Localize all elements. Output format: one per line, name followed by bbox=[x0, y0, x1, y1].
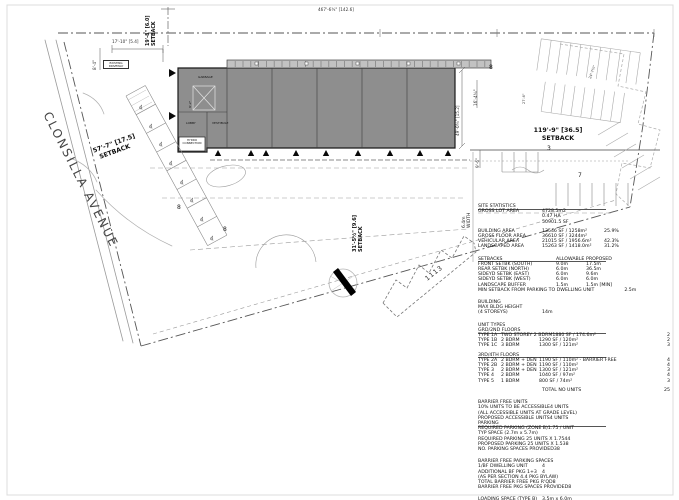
svg-text:♿: ♿ bbox=[178, 178, 186, 187]
stats-label: TYPE 1C bbox=[478, 343, 501, 348]
stall-count-canopy-end: 8 bbox=[489, 65, 493, 72]
stats-row: TYPE 1C 3 BDRM 1300 SF / 121m² 3 bbox=[478, 343, 670, 348]
stats-count: 3 bbox=[656, 343, 670, 348]
garbage-room-label: GARBAGE bbox=[198, 76, 213, 79]
dimension-27-6: 27'-6" bbox=[522, 93, 526, 104]
stats-value: 38 bbox=[554, 447, 616, 452]
stats-value: TOTAL NO UNITS bbox=[542, 388, 604, 393]
stats-count: 25 bbox=[656, 388, 670, 393]
stats-extra bbox=[604, 388, 656, 393]
stats-extra bbox=[630, 485, 656, 490]
hydro-connection-label: HYDRO CONNECTION bbox=[180, 139, 204, 145]
stats-row: LANDSCAPED AREA 15263 SF / 1418.0m² 31.2… bbox=[478, 244, 670, 249]
stats-count bbox=[656, 288, 670, 293]
building-footprint bbox=[178, 68, 455, 152]
stats-label: BARRIER FREE PKG SPACES PROVIDED bbox=[478, 485, 568, 490]
stall-count-left: 8 bbox=[177, 205, 181, 212]
building-depth-dimension: 49'-0¾" [15.2] bbox=[456, 105, 461, 136]
stats-value bbox=[594, 288, 624, 293]
stats-row: 50901.5 SF bbox=[478, 220, 670, 225]
stats-value: 15263 SF / 1418.0m² bbox=[542, 244, 604, 249]
canopy bbox=[227, 60, 491, 68]
setback-label-bottom: 31'-5½" [9.6] SETBACK bbox=[352, 215, 364, 252]
overall-dimension-label: 467'-6¾" [142.6] bbox=[318, 8, 354, 13]
stats-label: (4 STOREYS) bbox=[478, 310, 542, 315]
stats-label: TYPE 5 bbox=[478, 379, 501, 384]
dimension-9-6: 9'-6" bbox=[476, 158, 481, 168]
svg-text:♿: ♿ bbox=[147, 122, 155, 131]
aisle-width-label: 6.4m WIDTH bbox=[462, 213, 472, 228]
stall-count-right-7: 7 bbox=[578, 173, 582, 180]
site-statistics-table: SITE STATISTICS GROSS LOT AREA 4728.5m2 … bbox=[478, 204, 670, 500]
stats-count bbox=[656, 447, 670, 452]
stats-extra: 800 SF / 74m² bbox=[539, 379, 656, 384]
stats-row: TYPE 5 1 BDRM 800 SF / 74m² 3 bbox=[478, 379, 670, 384]
parking-rows-top-right bbox=[531, 39, 640, 124]
stair-dimension-label: 9'-2" bbox=[189, 101, 192, 108]
stats-row: NO. PARKING SPACES PROVIDED 38 bbox=[478, 447, 670, 452]
stats-count bbox=[656, 220, 670, 225]
site-plan-sheet: ♿ ♿ ♿ ♿ ♿ ♿ ♿ ♿ CLONSILLA AVENUE 467'-6¾ bbox=[0, 0, 679, 500]
stats-row: MIN SETBACK FROM PARKING TO DWELLING UNI… bbox=[478, 288, 670, 293]
setback-label-right: 119'-9" [36.5] SETBACK bbox=[532, 127, 584, 142]
stats-value: 8 bbox=[568, 485, 630, 490]
stats-label bbox=[478, 220, 542, 225]
stats-extra: 1300 SF / 121m² bbox=[539, 343, 656, 348]
setback-label-top: 19'-8" [6.0] SETBACK bbox=[146, 15, 158, 46]
svg-text:♿: ♿ bbox=[157, 140, 165, 149]
stats-count bbox=[656, 485, 670, 490]
existing-driveway-label: EXISTING DRIVEWAY bbox=[103, 60, 129, 69]
vestibule-label: VESTIBULE bbox=[212, 122, 228, 125]
stats-extra bbox=[604, 310, 656, 315]
stats-value: 50901.5 SF bbox=[542, 220, 604, 225]
stats-value: 3 BDRM bbox=[501, 343, 539, 348]
stats-label: NO. PARKING SPACES PROVIDED bbox=[478, 447, 554, 452]
stats-count bbox=[656, 310, 670, 315]
stats-extra: 31.2% bbox=[604, 244, 656, 249]
stats-value: 1 BDRM bbox=[501, 379, 539, 384]
stats-label bbox=[478, 388, 542, 393]
stats-row: TOTAL NO UNITS 25 bbox=[478, 388, 670, 393]
dimension-16-4: 16'-4¾" bbox=[474, 89, 479, 106]
lobby-label: LOBBY bbox=[186, 122, 196, 125]
dimension-17-10: 17'-10" [5.4] bbox=[112, 40, 139, 45]
stall-count-mid: 8 bbox=[223, 227, 227, 234]
stats-row: (4 STOREYS) 14m bbox=[478, 310, 670, 315]
dimension-8-4: 8'-4" bbox=[93, 60, 98, 70]
stats-count bbox=[656, 244, 670, 249]
stats-value: 14m bbox=[542, 310, 604, 315]
stats-label: LANDSCAPED AREA bbox=[478, 244, 542, 249]
stats-label: MIN SETBACK FROM PARKING TO DWELLING UNI… bbox=[478, 288, 594, 293]
street-clonsilla bbox=[45, 40, 172, 343]
north-arrow bbox=[329, 268, 357, 297]
stats-count: 3 bbox=[656, 379, 670, 384]
stats-row: BARRIER FREE PKG SPACES PROVIDED 8 bbox=[478, 485, 670, 490]
stats-extra bbox=[604, 220, 656, 225]
stats-extra: 2.5m bbox=[624, 288, 656, 293]
stall-count-right-3: 3 bbox=[547, 146, 551, 153]
stats-extra bbox=[616, 447, 656, 452]
